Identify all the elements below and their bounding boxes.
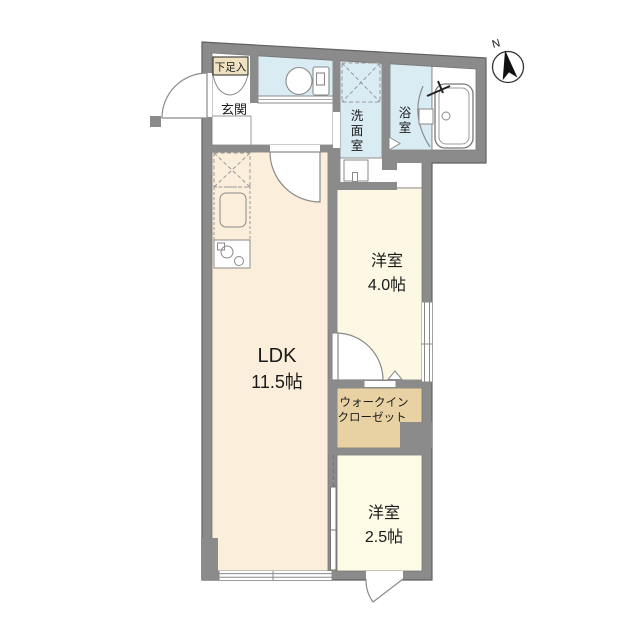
ldk-door-opening bbox=[270, 145, 320, 152]
bath-counter bbox=[419, 109, 433, 124]
wic-label-line2: クローゼット bbox=[338, 411, 407, 424]
right-window-opening bbox=[422, 302, 432, 382]
shoe-cabinet-label: 下足入 bbox=[215, 62, 247, 74]
bath-label: 浴 bbox=[399, 106, 412, 120]
stove-unit bbox=[214, 240, 250, 268]
western25-size: 2.5帖 bbox=[365, 528, 403, 546]
western25-door-opening bbox=[366, 571, 403, 580]
bathtub bbox=[435, 84, 473, 148]
vanity-tap bbox=[353, 173, 358, 182]
bathtub-drain bbox=[442, 112, 450, 120]
svg-text:面: 面 bbox=[351, 124, 364, 138]
entry-door-swing bbox=[162, 73, 207, 118]
western4-door-leaf bbox=[332, 333, 338, 380]
entry-porch-wall bbox=[150, 116, 161, 127]
ldk-window-opening bbox=[219, 571, 332, 580]
western4-label: 洋室 bbox=[371, 252, 403, 270]
western4-size: 4.0帖 bbox=[368, 276, 406, 294]
western25-label: 洋室 bbox=[368, 504, 400, 522]
wic-label-line1: ウォークイン bbox=[340, 396, 409, 409]
wic-entry-threshold bbox=[364, 381, 396, 388]
north-compass: N bbox=[491, 37, 524, 82]
svg-text:室: 室 bbox=[399, 120, 412, 135]
ldk-western25-sliding-door bbox=[331, 487, 337, 570]
washroom-label: 洗 bbox=[351, 109, 364, 123]
ldk-size: 11.5帖 bbox=[251, 372, 303, 392]
floor-plan-page: N 下足入 玄関 洗 面 室 浴 室 洋室 4.0帖 LDK 11.5帖 ウォー… bbox=[0, 0, 640, 640]
toilet-bowl bbox=[286, 68, 312, 95]
ldk-label: LDK bbox=[258, 345, 298, 367]
svg-text:室: 室 bbox=[351, 138, 364, 153]
western25-exterior-door bbox=[366, 579, 403, 602]
genkan-label: 玄関 bbox=[221, 102, 247, 117]
floor-plan-drawing: N 下足入 玄関 洗 面 室 浴 室 洋室 4.0帖 LDK 11.5帖 ウォー… bbox=[0, 0, 640, 640]
north-label: N bbox=[491, 37, 502, 51]
toilet-fixtures bbox=[286, 67, 329, 95]
washroom-door-opening bbox=[333, 112, 340, 148]
